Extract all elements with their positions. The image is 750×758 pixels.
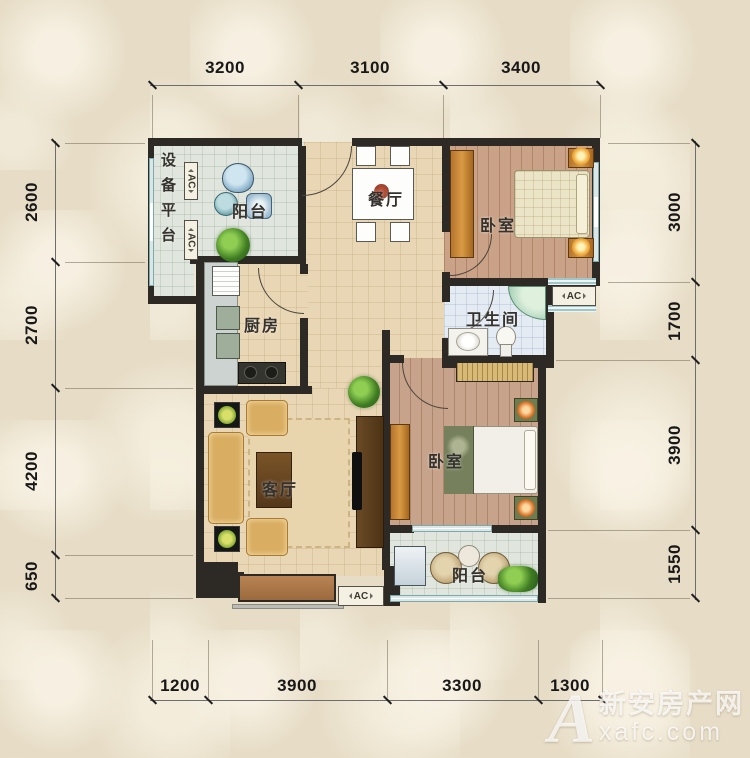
plant-icon [218,406,236,424]
dim-left-3: 4200 [22,451,42,491]
bay-window-frame [232,604,344,609]
dim-ext-line [152,95,153,138]
washing-machine-icon [394,546,426,586]
ac-label: AC [354,591,368,602]
dim-line-top [150,85,602,86]
dim-ext-line [387,640,388,698]
dim-line-left [55,141,56,600]
dim-right-4: 1550 [665,544,685,584]
window-bedroom-balcony [412,525,492,532]
dresser-icon [456,362,534,382]
lamp-icon [572,147,590,165]
dim-ext-line [65,262,145,263]
lamp-icon [517,401,535,419]
wash-basin-icon [222,163,254,193]
wall-segment [196,264,204,394]
tv-icon [352,452,362,510]
ac-unit-platform-bottom: AC [184,220,198,260]
dining-chair-icon [390,222,410,242]
dim-ext-line [600,95,601,138]
floorplan-page: { "dimensions": { "top": ["3200", "3100"… [0,0,750,751]
window-balcony-bottom [390,595,538,602]
plant-icon [348,376,380,408]
plant-icon [216,228,250,262]
room-label-bedroom-top: 卧室 [480,212,516,236]
armchair-icon [246,518,288,556]
dim-line-bottom [150,700,604,701]
plant-icon [498,566,538,592]
room-label-kitchen: 厨房 [244,312,280,336]
ac-label: AC [186,174,197,188]
sink-icon [216,306,240,330]
dim-right-1: 3000 [665,192,685,232]
dining-chair-icon [356,146,376,166]
dim-ext-line [65,555,193,556]
fridge-icon [212,266,240,296]
watermark-site-name: 新安房产网 [599,690,744,718]
wall-segment [442,146,450,232]
ac-unit-bathroom-side: AC [552,286,596,306]
wall-segment [196,386,312,394]
burner-icon [265,366,278,379]
room-label-living: 客厅 [262,476,298,500]
armchair-icon [246,400,288,436]
dim-ext-line [298,95,299,138]
dim-ext-line [65,143,145,144]
watermark-site-url: xafc.com [599,719,744,745]
window-platform-left [149,158,154,286]
wash-sink-icon [456,332,480,351]
window-ac-platform-top [548,278,596,285]
ac-label: AC [186,233,197,247]
wall-segment [382,355,404,363]
dim-right-2: 1700 [665,301,685,341]
wall-segment [148,138,302,146]
dim-ext-line [608,143,690,144]
wall-segment [196,388,204,568]
room-label-balcony-bottom: 阳台 [452,562,488,586]
wall-segment [388,525,414,533]
dim-ext-line [443,95,444,138]
plant-icon [218,530,236,548]
ac-unit-platform-top: AC [184,162,198,200]
pillow-icon [524,430,536,490]
dim-top-2: 3100 [330,58,410,78]
wall-segment [352,138,600,146]
room-label-dining: 餐厅 [368,186,404,210]
watermark: A 新安房产网 xafc.com [548,690,744,750]
pillow-icon [576,174,588,234]
lamp-icon [572,238,590,256]
dim-top-1: 3200 [185,58,265,78]
dim-bottom-1: 1200 [140,676,220,696]
wardrobe-icon [390,424,410,520]
wall-segment [300,318,308,394]
dining-chair-icon [356,222,376,242]
room-label-bedroom-bottom: 卧室 [428,448,464,472]
lamp-icon [517,499,535,517]
toilet-tank-icon [500,344,512,357]
watermark-logo: A [548,690,595,750]
room-label-balcony-top: 阳台 [232,198,268,222]
dim-ext-line [65,388,193,389]
ac-label: AC [567,291,581,302]
dim-bottom-2: 3900 [257,676,337,696]
room-label-bathroom: 卫生间 [466,306,520,330]
window-ac-platform-bottom [548,305,596,312]
dining-chair-icon [390,146,410,166]
dim-ext-line [65,598,193,599]
burner-icon [244,366,257,379]
sofa-icon [208,432,244,524]
dim-bottom-3: 3300 [422,676,502,696]
dim-left-1: 2600 [22,182,42,222]
sink-icon [216,333,240,359]
dim-right-3: 3900 [665,425,685,465]
bay-window-sill [238,574,336,602]
dim-left-4: 650 [22,561,42,591]
wall-segment [538,533,546,603]
dim-top-3: 3400 [481,58,561,78]
wall-segment [538,355,546,533]
ac-unit-living-bottom: AC [338,586,384,606]
wall-segment [442,286,450,302]
wardrobe-icon [450,150,474,258]
room-label-equipment-platform: 设备平台 [157,152,178,352]
dim-left-2: 2700 [22,305,42,345]
wall-segment [492,525,546,533]
